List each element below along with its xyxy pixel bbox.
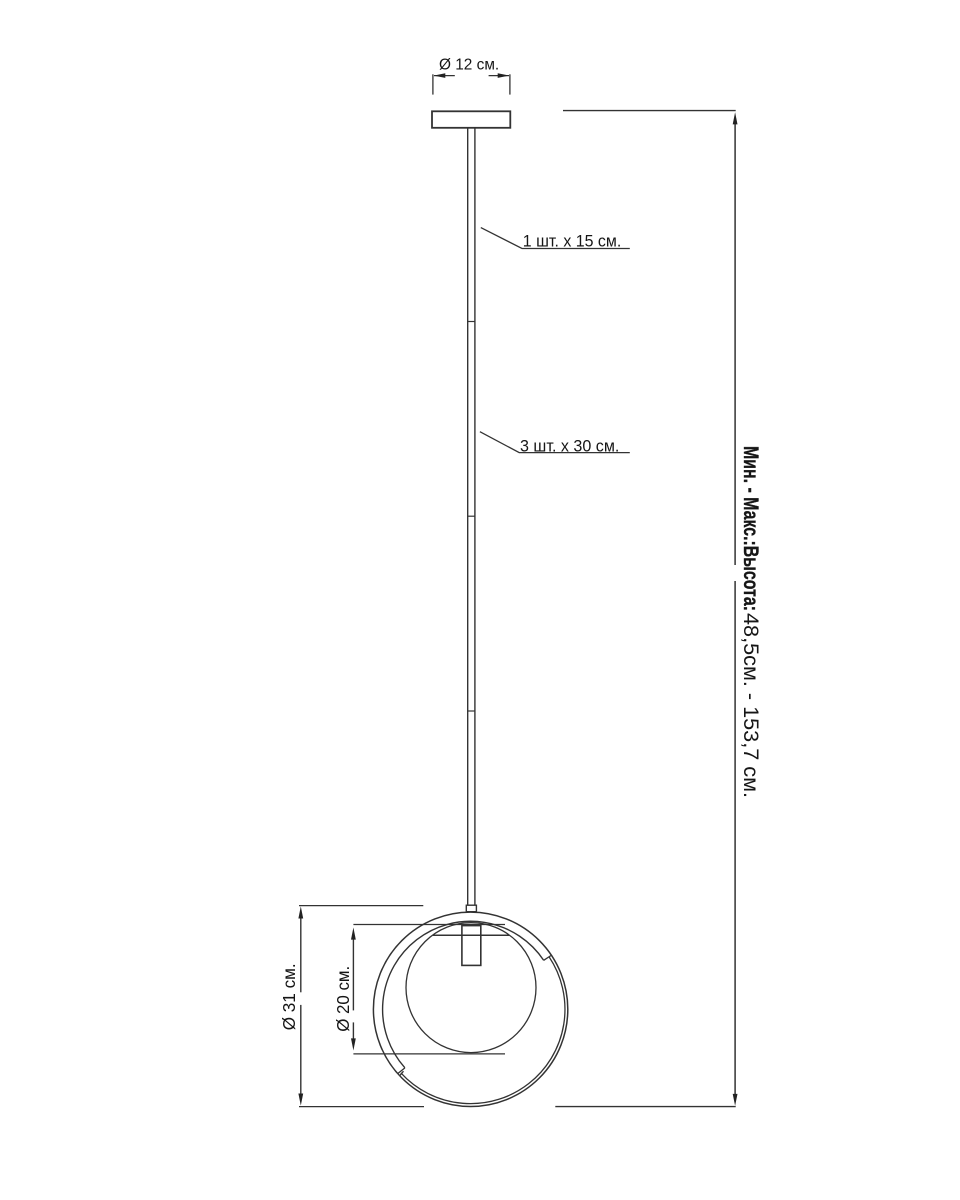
svg-text:Ø 20 см.: Ø 20 см. xyxy=(333,966,353,1032)
svg-text:Мин. - Макс.:Высота:: Мин. - Макс.:Высота: xyxy=(739,446,763,611)
svg-text:Ø 31 см.: Ø 31 см. xyxy=(279,963,299,1030)
svg-text:Ø 12 см.: Ø 12 см. xyxy=(439,57,499,74)
svg-text:48,5см. - 153,7 см.: 48,5см. - 153,7 см. xyxy=(739,613,763,798)
svg-text:1 шт. x 15 см.: 1 шт. x 15 см. xyxy=(523,231,622,250)
svg-text:3 шт. x 30 см.: 3 шт. x 30 см. xyxy=(520,436,619,455)
